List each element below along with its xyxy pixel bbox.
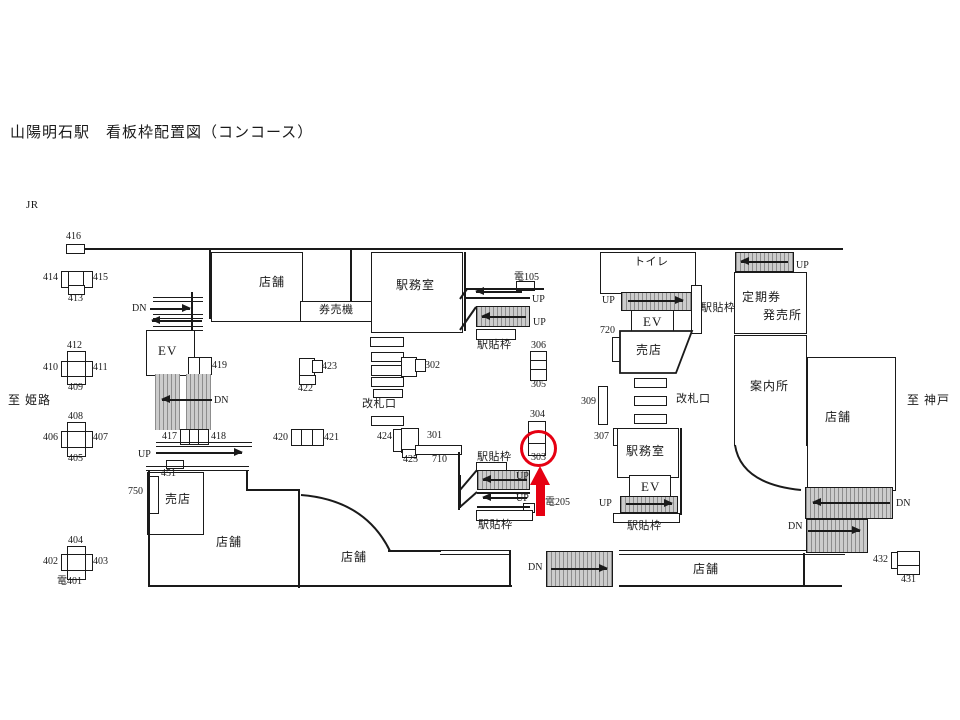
railway-label: JR (26, 200, 39, 211)
frame-label-423: 423 (322, 362, 337, 372)
room-shop-nw-label: 店舗 (259, 276, 285, 288)
poster-frame-label-mid: 駅貼枠 (701, 303, 736, 314)
up-label-nc1: UP (532, 295, 545, 305)
dn-label-west: DN (214, 396, 228, 406)
frame-label-416: 416 (66, 232, 81, 242)
frame-label-421: 421 (324, 433, 339, 443)
frame-label-424: 424 (377, 432, 392, 442)
frame-label-410: 410 (43, 363, 58, 373)
direction-west-label: 至 姫路 (8, 394, 51, 406)
frame-label-415: 415 (93, 273, 108, 283)
frame-label-306: 306 (531, 341, 546, 351)
frame-label-413: 413 (68, 294, 83, 304)
up-label-cs2: UP (516, 494, 529, 504)
room-shop-sw-label: 店舗 (216, 536, 242, 548)
frame-label-307: 307 (594, 432, 609, 442)
stair-diagonal-cs1 (460, 470, 477, 490)
frame-label-402: 402 (43, 557, 58, 567)
frame-label-401: 電401 (57, 577, 82, 587)
frame-label-418: 418 (211, 432, 226, 442)
room-ev-east-label: EV (641, 480, 660, 493)
frame-label-451: 451 (161, 469, 176, 479)
stair-diagonal-cs2 (460, 492, 477, 507)
up-label-se: UP (599, 499, 612, 509)
curves-overlay (0, 0, 960, 720)
poster-frame-label-cs-top: 駅貼枠 (477, 452, 512, 463)
ticket-gate-west-label: 改札口 (362, 399, 397, 410)
frame-label-417: 417 (162, 432, 177, 442)
highlight-circle (520, 430, 557, 467)
poster-frame-label-se: 駅貼枠 (627, 521, 662, 532)
frame-label-412: 412 (67, 341, 82, 351)
frame-label-420: 420 (273, 433, 288, 443)
poster-frame-label-cs-bottom: 駅貼枠 (478, 520, 513, 531)
frame-label-419: 419 (212, 361, 227, 371)
direction-east-label: 至 神戸 (907, 394, 950, 406)
poster-frame-label-nc: 駅貼枠 (477, 340, 512, 351)
frame-label-205: 電205 (545, 498, 570, 508)
frame-label-710: 710 (432, 455, 447, 465)
room-ev-mid-label: EV (643, 315, 662, 328)
frame-label-414: 414 (43, 273, 58, 283)
highlight-arrow-head (530, 466, 550, 485)
room-commuter-pass-label1: 定期券 (742, 291, 781, 303)
dn-label-south: DN (528, 563, 542, 573)
frame-label-405: 405 (68, 454, 83, 464)
frame-label-404: 404 (68, 536, 83, 546)
dn-label-nw: DN (132, 304, 146, 314)
frame-label-750: 750 (128, 487, 143, 497)
frame-label-403: 403 (93, 557, 108, 567)
frame-label-407: 407 (93, 433, 108, 443)
frame-label-406: 406 (43, 433, 58, 443)
up-label-corridor-west: UP (138, 450, 151, 460)
ticket-gate-east-label: 改札口 (676, 394, 711, 405)
frame-label-720: 720 (600, 326, 615, 336)
room-toilet-label: トイレ (634, 257, 669, 268)
dn-label-e-lower: DN (788, 522, 802, 532)
room-kiosk-mid-label: 売店 (636, 344, 662, 356)
room-kiosk-west-label: 売店 (165, 493, 191, 505)
room-ticket-machines-label: 券売機 (319, 305, 354, 316)
frame-label-301: 301 (427, 431, 442, 441)
floor-plan-canvas: 山陽明石駅 看板枠配置図（コンコース） JR 至 姫路 至 神戸 416 414… (0, 0, 960, 720)
room-station-office-n-label: 駅務室 (396, 279, 435, 291)
frame-label-408: 408 (68, 412, 83, 422)
frame-label-411: 411 (93, 363, 108, 373)
frame-label-105: 電105 (514, 273, 539, 283)
frame-label-425: 425 (403, 455, 418, 465)
up-label-toilet: UP (602, 296, 615, 306)
highlight-arrow-shaft (536, 484, 545, 516)
stair-diagonal-nc1 (460, 289, 467, 299)
up-label-ne: UP (796, 261, 809, 271)
room-shop-s-label: 店舗 (341, 551, 367, 563)
frame-label-304: 304 (530, 410, 545, 420)
frame-label-409: 409 (68, 383, 83, 393)
frame-label-431: 431 (901, 575, 916, 585)
stair-diagonal-nc2 (460, 307, 476, 330)
room-information-label: 案内所 (750, 380, 789, 392)
room-shop-se-label: 店舗 (693, 563, 719, 575)
page-title: 山陽明石駅 看板枠配置図（コンコース） (10, 126, 313, 141)
room-ev-west-label: EV (158, 344, 177, 357)
room-commuter-pass-label2: 発売所 (763, 309, 802, 321)
frame-label-302: 302 (425, 361, 440, 371)
room-station-office-s-label: 駅務室 (626, 445, 665, 457)
frame-label-432: 432 (873, 555, 888, 565)
wall-curve-shop-s (301, 495, 390, 551)
dn-label-e-upper: DN (896, 499, 910, 509)
up-label-nc2: UP (533, 318, 546, 328)
up-label-cs1: UP (516, 472, 529, 482)
frame-label-309: 309 (581, 397, 596, 407)
room-shop-e-label: 店舗 (825, 411, 851, 423)
frame-label-422: 422 (298, 384, 313, 394)
wall-curve-information (735, 445, 801, 490)
frame-label-305: 305 (531, 380, 546, 390)
